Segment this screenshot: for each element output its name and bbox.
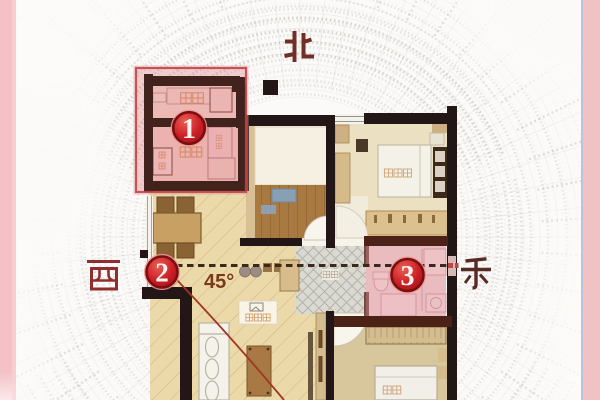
svg-text:2: 2 bbox=[155, 258, 169, 288]
svg-text:1: 1 bbox=[182, 114, 196, 145]
svg-text:3: 3 bbox=[401, 261, 415, 292]
svg-text:45°: 45° bbox=[204, 271, 234, 293]
